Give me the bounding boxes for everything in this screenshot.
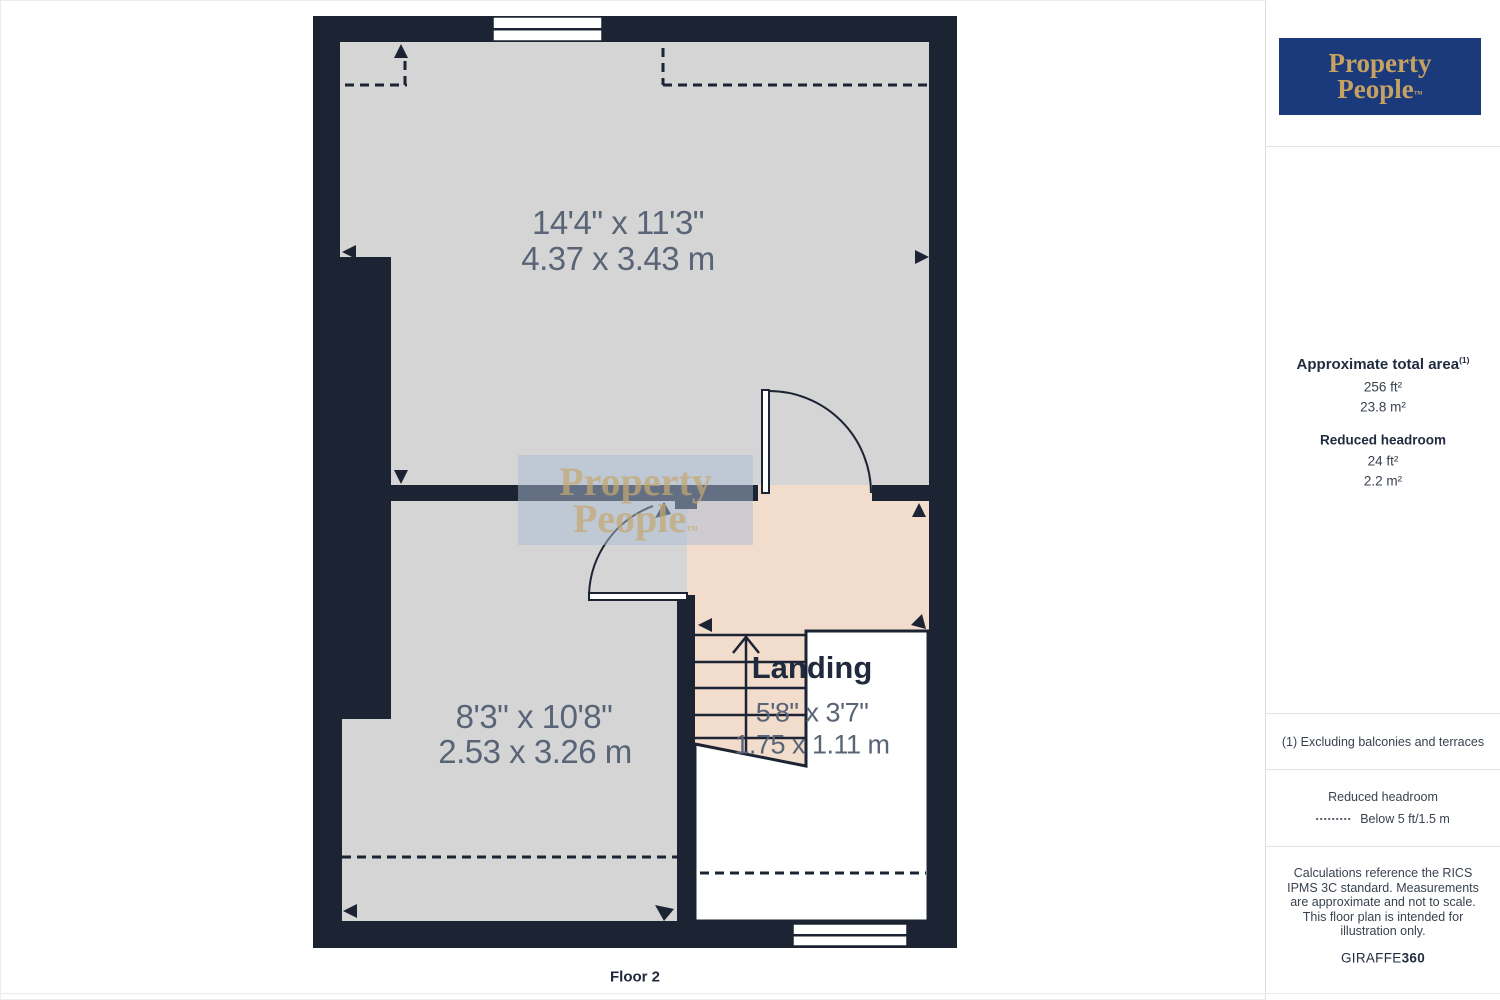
- footnote-ref: (1): [1459, 355, 1469, 365]
- info-sidebar: Property People™ Approximate total area(…: [1265, 0, 1500, 1000]
- dotted-line-icon: [1316, 818, 1350, 820]
- page-bottom-rule: [0, 993, 1500, 994]
- divider: [1266, 846, 1500, 847]
- divider: [1266, 713, 1500, 714]
- trademark-icon: ™: [686, 523, 698, 537]
- trademark-icon: ™: [1414, 89, 1423, 99]
- watermark-text: Property People™: [559, 463, 712, 537]
- reduced-headroom-heading: Reduced headroom: [1320, 433, 1446, 448]
- legend-label: Below 5 ft/1.5 m: [1360, 812, 1450, 826]
- floor-label: Floor 2: [610, 969, 660, 986]
- property-people-logo: Property People™: [1279, 38, 1481, 115]
- room1-dims-imperial: 14'4" x 11'3": [532, 204, 704, 242]
- reduced-headroom-metric: 2.2 m²: [1364, 474, 1402, 489]
- logo-text: Property People™: [1329, 51, 1432, 102]
- divider: [1266, 146, 1500, 147]
- room2-dims-metric: 2.53 x 3.26 m: [438, 733, 631, 771]
- total-area-imperial: 256 ft²: [1364, 380, 1402, 395]
- doorway-opening: [758, 485, 872, 501]
- landing-label: Landing: [752, 650, 873, 686]
- legend-heading: Reduced headroom: [1328, 790, 1438, 804]
- reduced-headroom-imperial: 24 ft²: [1368, 454, 1399, 469]
- legend-item: Below 5 ft/1.5 m: [1316, 812, 1450, 826]
- room2-dims-imperial: 8'3" x 10'8": [456, 698, 613, 736]
- window-top: [493, 17, 602, 41]
- giraffe360-brand: GIRAFFE360: [1341, 951, 1425, 966]
- divider: [1266, 769, 1500, 770]
- watermark: Property People™: [518, 455, 753, 545]
- window-bottom: [793, 924, 907, 946]
- disclaimer-text: Calculations reference the RICS IPMS 3C …: [1284, 866, 1482, 939]
- floorplan-page: Property People™ 14'4" x 11'3" 4.37 x 3.…: [0, 0, 1500, 1000]
- total-area-heading: Approximate total area(1): [1297, 355, 1470, 373]
- landing-dims-imperial: 5'8" x 3'7": [756, 698, 869, 729]
- landing-partition-wall: [677, 595, 695, 921]
- floorplan-canvas: Property People™ 14'4" x 11'3" 4.37 x 3.…: [0, 0, 1265, 1000]
- total-area-metric: 23.8 m²: [1360, 400, 1406, 415]
- room1-dims-metric: 4.37 x 3.43 m: [521, 240, 714, 278]
- area-footnote: (1) Excluding balconies and terraces: [1282, 735, 1484, 749]
- landing-dims-metric: 1.75 x 1.11 m: [734, 730, 889, 761]
